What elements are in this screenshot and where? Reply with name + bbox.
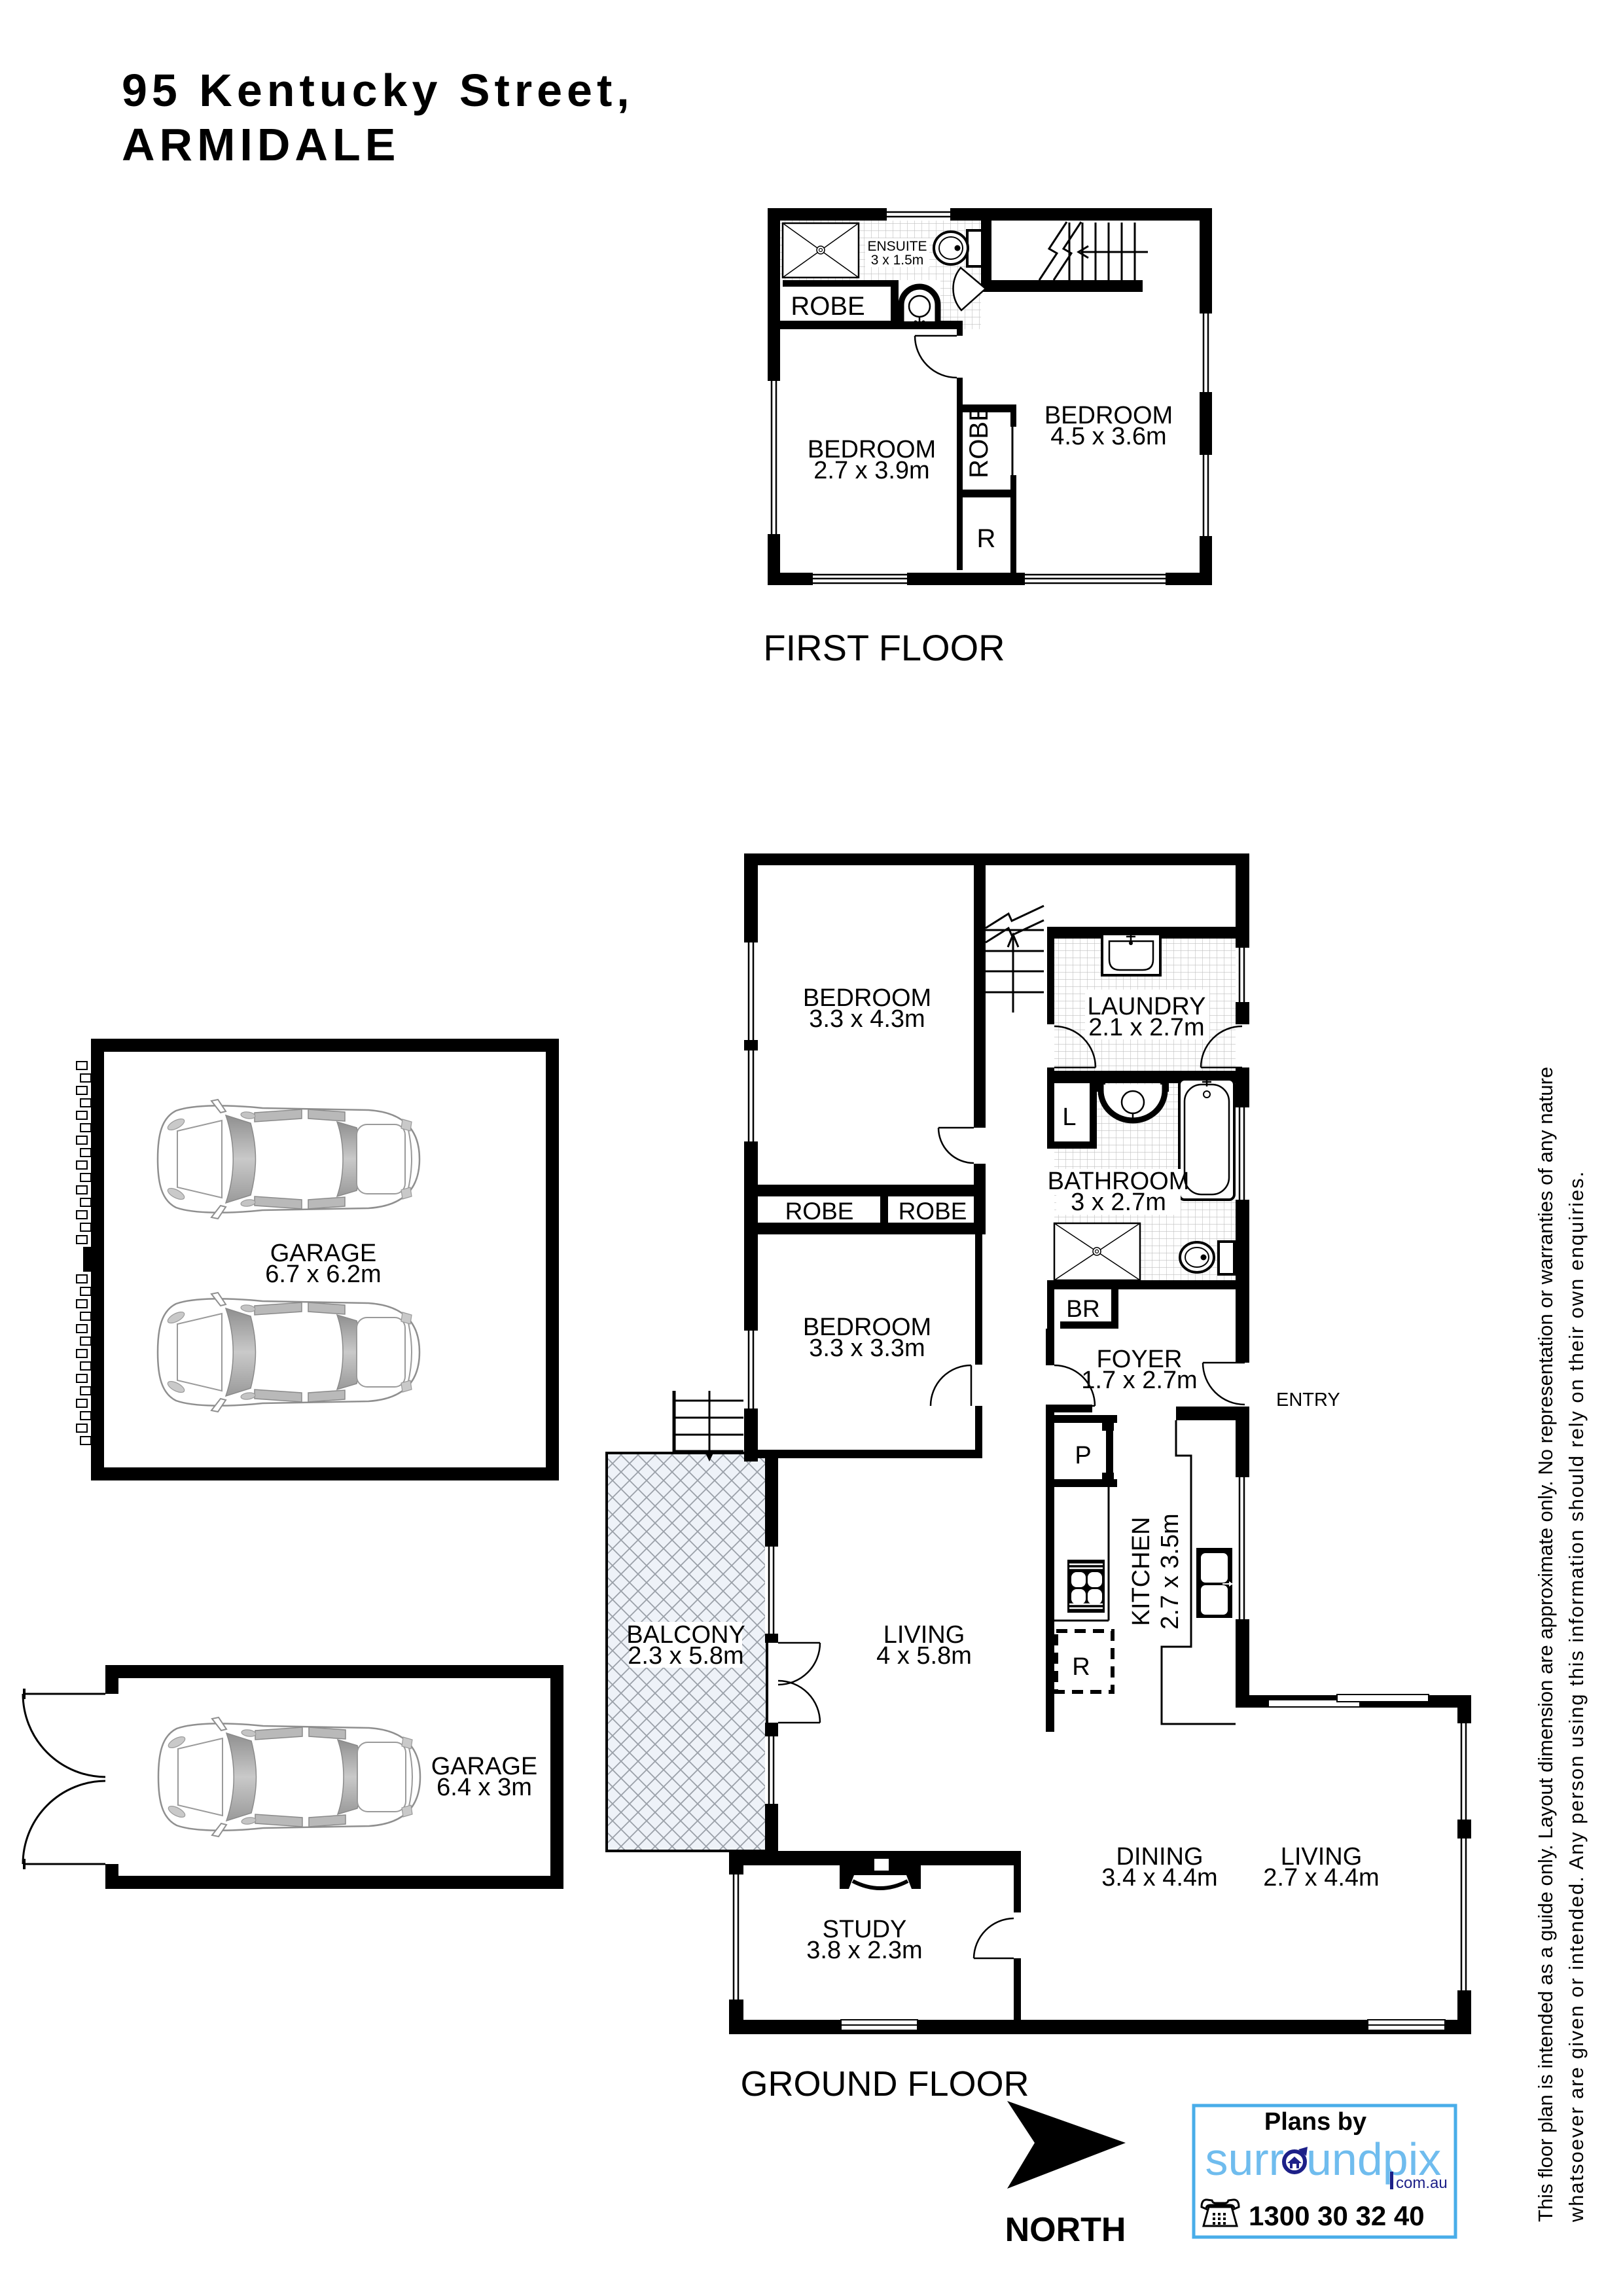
svg-text:ROBE: ROBE [785, 1198, 854, 1225]
svg-text:3.8 x 2.3m: 3.8 x 2.3m [806, 1937, 922, 1964]
svg-text:L: L [1062, 1103, 1076, 1131]
svg-text:BR: BR [1066, 1295, 1099, 1322]
svg-text:GROUND FLOOR: GROUND FLOOR [740, 2064, 1029, 2104]
svg-text:95 Kentucky Street,: 95 Kentucky Street, [122, 65, 634, 116]
svg-text:3 x 1.5m: 3 x 1.5m [871, 253, 924, 268]
svg-text:2.7 x 4.4m: 2.7 x 4.4m [1263, 1864, 1379, 1892]
svg-text:3.3 x 3.3m: 3.3 x 3.3m [809, 1335, 925, 1362]
svg-text:1.7 x 2.7m: 1.7 x 2.7m [1081, 1367, 1197, 1394]
svg-text:ENTRY: ENTRY [1276, 1390, 1340, 1410]
svg-text:ROBE: ROBE [965, 404, 993, 478]
svg-text:whatsoever are given or intend: whatsoever are given or intended. Any pe… [1565, 1170, 1588, 2223]
svg-text:4.5 x 3.6m: 4.5 x 3.6m [1050, 423, 1166, 450]
svg-text:2.7 x 3.5m: 2.7 x 3.5m [1156, 1513, 1184, 1629]
svg-text:KITCHEN: KITCHEN [1128, 1517, 1155, 1626]
svg-text:R: R [1072, 1653, 1090, 1681]
svg-text:ROBE: ROBE [899, 1198, 967, 1225]
svg-text:R: R [977, 524, 996, 553]
svg-text:2.7 x 3.9m: 2.7 x 3.9m [813, 457, 929, 484]
svg-text:P: P [1075, 1442, 1091, 1469]
svg-text:4 x 5.8m: 4 x 5.8m [876, 1642, 972, 1670]
svg-text:ENSUITE: ENSUITE [867, 239, 927, 254]
svg-text:com.au: com.au [1396, 2174, 1448, 2192]
svg-text:6.4 x 3m: 6.4 x 3m [437, 1774, 532, 1801]
svg-text:NORTH: NORTH [1005, 2211, 1126, 2249]
svg-text:ARMIDALE: ARMIDALE [122, 119, 400, 170]
svg-text:surr: surr [1205, 2134, 1284, 2185]
svg-text:This floor plan is intended as: This floor plan is intended as a guide o… [1534, 1067, 1557, 2222]
svg-text:Plans by: Plans by [1264, 2108, 1366, 2136]
svg-text:ROBE: ROBE [791, 292, 865, 321]
svg-text:1300 30 32 40: 1300 30 32 40 [1249, 2200, 1425, 2231]
svg-text:3.3 x 4.3m: 3.3 x 4.3m [809, 1005, 925, 1033]
svg-text:2.1 x 2.7m: 2.1 x 2.7m [1088, 1014, 1204, 1041]
svg-text:3.4 x 4.4m: 3.4 x 4.4m [1101, 1864, 1217, 1892]
svg-text:2.3 x 5.8m: 2.3 x 5.8m [628, 1642, 743, 1670]
svg-text:6.7 x 6.2m: 6.7 x 6.2m [265, 1261, 381, 1288]
svg-text:FIRST FLOOR: FIRST FLOOR [763, 627, 1005, 668]
svg-text:3 x 2.7m: 3 x 2.7m [1071, 1189, 1166, 1216]
